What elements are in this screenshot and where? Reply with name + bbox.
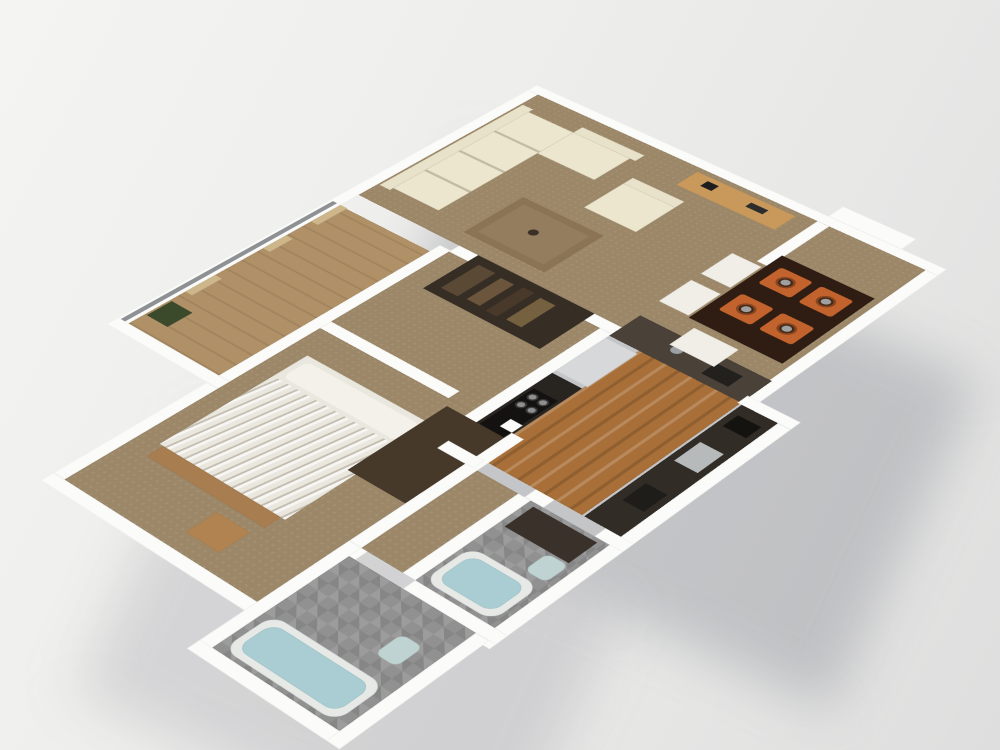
sofa-cushion-line-1	[493, 130, 540, 152]
sofa-cushion-line-2	[458, 150, 505, 173]
placemat-1	[758, 267, 813, 298]
console-media-box	[745, 203, 768, 215]
placemat-2	[798, 286, 854, 317]
placemat-3	[718, 293, 774, 325]
counter-item-2	[723, 415, 762, 438]
console-speaker	[700, 181, 719, 191]
bar-espresso-machine	[701, 363, 743, 387]
floorplan-3d-render	[0, 0, 1000, 750]
sofa-cushion-line-3	[424, 169, 472, 192]
placemat-4	[758, 313, 815, 345]
